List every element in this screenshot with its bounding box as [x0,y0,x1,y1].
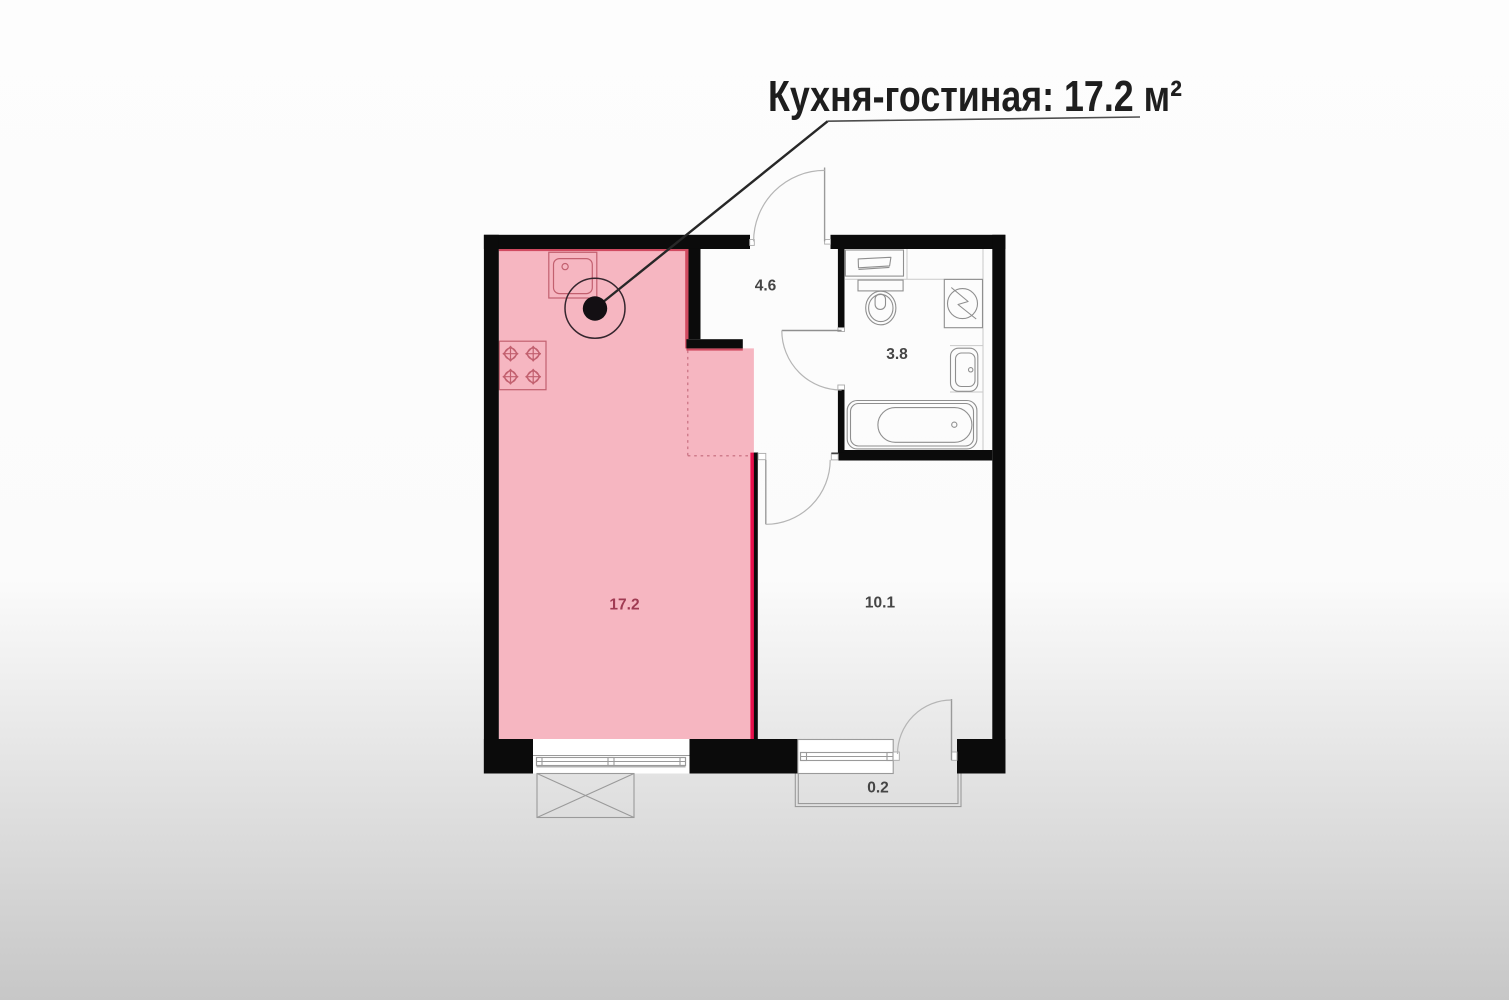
svg-text:0.2: 0.2 [867,780,889,797]
svg-text:17.2: 17.2 [609,596,639,613]
svg-text:10.1: 10.1 [865,594,896,611]
svg-text:4.6: 4.6 [755,278,777,295]
svg-text:Кухня-гостиная: 17.2 м²: Кухня-гостиная: 17.2 м² [768,73,1182,121]
svg-text:3.8: 3.8 [886,346,908,363]
